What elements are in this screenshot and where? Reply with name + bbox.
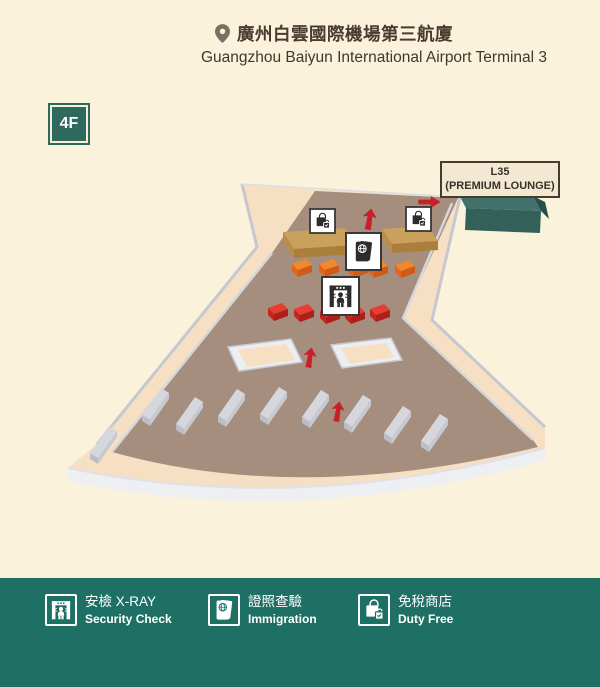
legend-item-security-check: 安檢 X-RAY Security Check	[45, 594, 172, 626]
legend-item-immigration: 證照查驗 Immigration	[208, 594, 317, 626]
duty-free-marker-tile	[310, 209, 335, 233]
legend-label-en: Duty Free	[398, 612, 453, 626]
legend-label-en: Security Check	[85, 612, 172, 626]
immigration-marker-tile	[346, 233, 381, 270]
lounge-label-line2: (PREMIUM LOUNGE)	[443, 179, 557, 193]
lounge-label-line1: L35	[443, 165, 557, 179]
legend-label-zh: 安檢 X-RAY	[85, 594, 172, 610]
premium-lounge-label: L35 (PREMIUM LOUNGE)	[440, 161, 560, 198]
xray-gate-icon	[45, 594, 77, 626]
airport-map-page: { "header": { "title_zh": "廣州白雲國際機場第三航廈"…	[0, 0, 600, 687]
legend-label-en: Immigration	[248, 612, 317, 626]
security-check-marker-tile	[322, 277, 359, 315]
legend-label-zh: 證照查驗	[248, 594, 317, 610]
duty-free-bag-icon	[358, 594, 390, 626]
passport-icon	[208, 594, 240, 626]
legend-item-duty-free: 免稅商店 Duty Free	[358, 594, 453, 626]
legend-label-zh: 免稅商店	[398, 594, 453, 610]
duty-free-marker-tile	[406, 207, 431, 231]
passport-icon	[356, 240, 373, 261]
premium-lounge-block	[458, 193, 549, 233]
